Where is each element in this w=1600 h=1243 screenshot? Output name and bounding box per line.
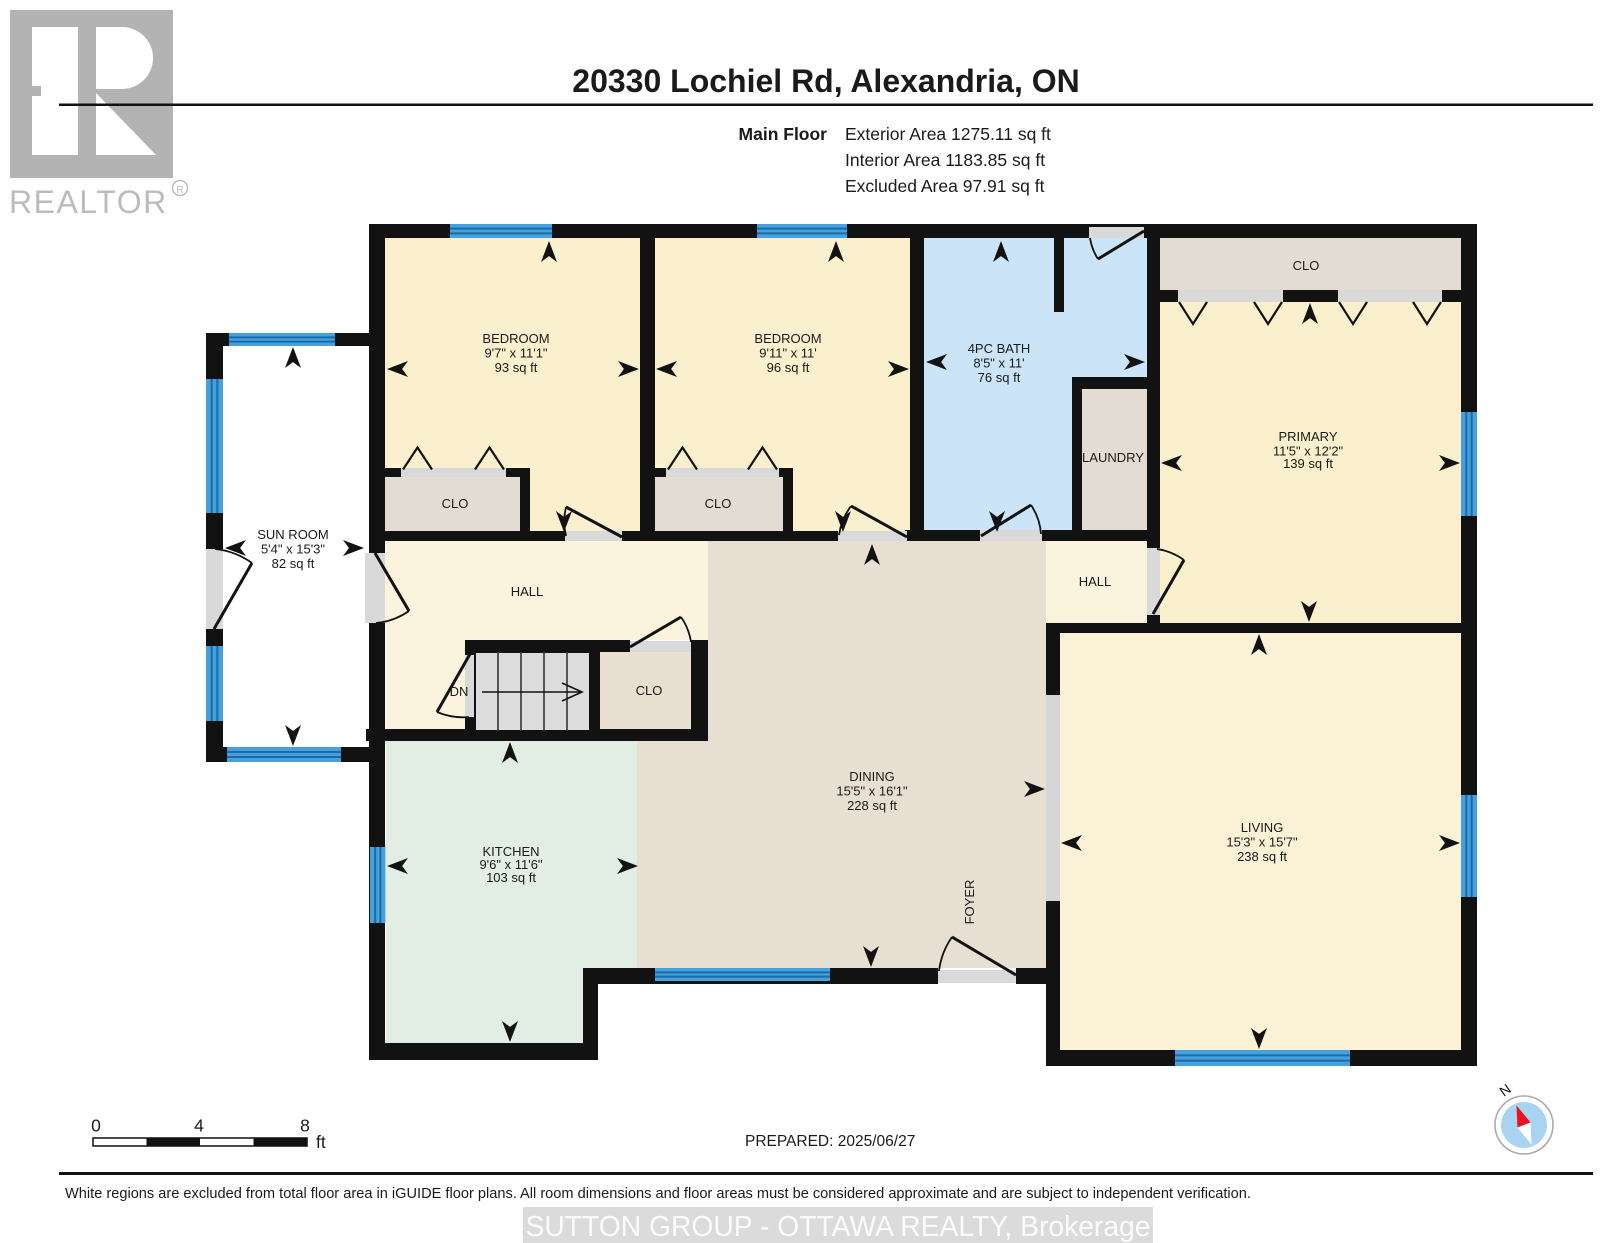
svg-text:BEDROOM: BEDROOM — [482, 331, 549, 346]
svg-text:REALTOR: REALTOR — [9, 184, 168, 220]
svg-text:CLO: CLO — [705, 496, 732, 511]
svg-text:SUN ROOM: SUN ROOM — [257, 527, 329, 542]
svg-text:HALL: HALL — [511, 584, 544, 599]
svg-text:20330 Lochiel Rd, Alexandria,: 20330 Lochiel Rd, Alexandria, ON — [572, 63, 1079, 99]
svg-text:8: 8 — [300, 1116, 310, 1136]
svg-text:HALL: HALL — [1079, 574, 1112, 589]
svg-text:96 sq ft: 96 sq ft — [767, 360, 810, 375]
svg-text:8'5" x 11': 8'5" x 11' — [973, 356, 1024, 371]
svg-text:9'7" x 11'1": 9'7" x 11'1" — [484, 346, 547, 361]
svg-text:228 sq ft: 228 sq ft — [847, 798, 897, 813]
svg-text:LAUNDRY: LAUNDRY — [1082, 450, 1144, 465]
svg-text:ft: ft — [316, 1132, 326, 1152]
svg-text:15'3" x 15'7": 15'3" x 15'7" — [1226, 835, 1298, 850]
svg-text:Main Floor: Main Floor — [739, 124, 828, 144]
svg-text:PREPARED: 2025/06/27: PREPARED: 2025/06/27 — [745, 1133, 915, 1150]
svg-text:5'4" x 15'3": 5'4" x 15'3" — [261, 542, 325, 557]
svg-text:Interior Area 1183.85 sq ft: Interior Area 1183.85 sq ft — [845, 150, 1045, 170]
svg-text:R: R — [176, 185, 183, 196]
svg-text:9'11" x 11': 9'11" x 11' — [759, 346, 817, 361]
svg-text:76 sq ft: 76 sq ft — [978, 370, 1021, 385]
svg-text:Exterior Area 1275.11 sq ft: Exterior Area 1275.11 sq ft — [845, 124, 1051, 144]
svg-text:15'5" x 16'1": 15'5" x 16'1" — [836, 784, 908, 799]
svg-text:White regions are excluded fro: White regions are excluded from total fl… — [65, 1186, 1251, 1202]
svg-text:PRIMARY: PRIMARY — [1279, 429, 1338, 444]
svg-text:Excluded Area 97.91 sq ft: Excluded Area 97.91 sq ft — [845, 176, 1045, 196]
svg-text:0: 0 — [91, 1116, 101, 1136]
svg-text:DN: DN — [450, 684, 469, 699]
svg-text:4: 4 — [194, 1116, 204, 1136]
svg-text:FOYER: FOYER — [962, 880, 977, 925]
svg-text:4PC BATH: 4PC BATH — [968, 341, 1031, 356]
svg-text:82 sq ft: 82 sq ft — [272, 556, 315, 571]
svg-text:CLO: CLO — [1293, 258, 1320, 273]
svg-text:LIVING: LIVING — [1241, 820, 1284, 835]
svg-text:238 sq ft: 238 sq ft — [1237, 849, 1287, 864]
svg-text:CLO: CLO — [636, 683, 663, 698]
svg-text:139 sq ft: 139 sq ft — [1283, 456, 1333, 471]
svg-text:103 sq ft: 103 sq ft — [486, 870, 536, 885]
svg-text:BEDROOM: BEDROOM — [754, 331, 821, 346]
svg-text:CLO: CLO — [442, 496, 469, 511]
svg-text:SUTTON GROUP - OTTAWA REALTY,: SUTTON GROUP - OTTAWA REALTY, Brokerage — [526, 1211, 1151, 1243]
svg-text:DINING: DINING — [849, 769, 895, 784]
svg-text:93 sq ft: 93 sq ft — [495, 360, 538, 375]
